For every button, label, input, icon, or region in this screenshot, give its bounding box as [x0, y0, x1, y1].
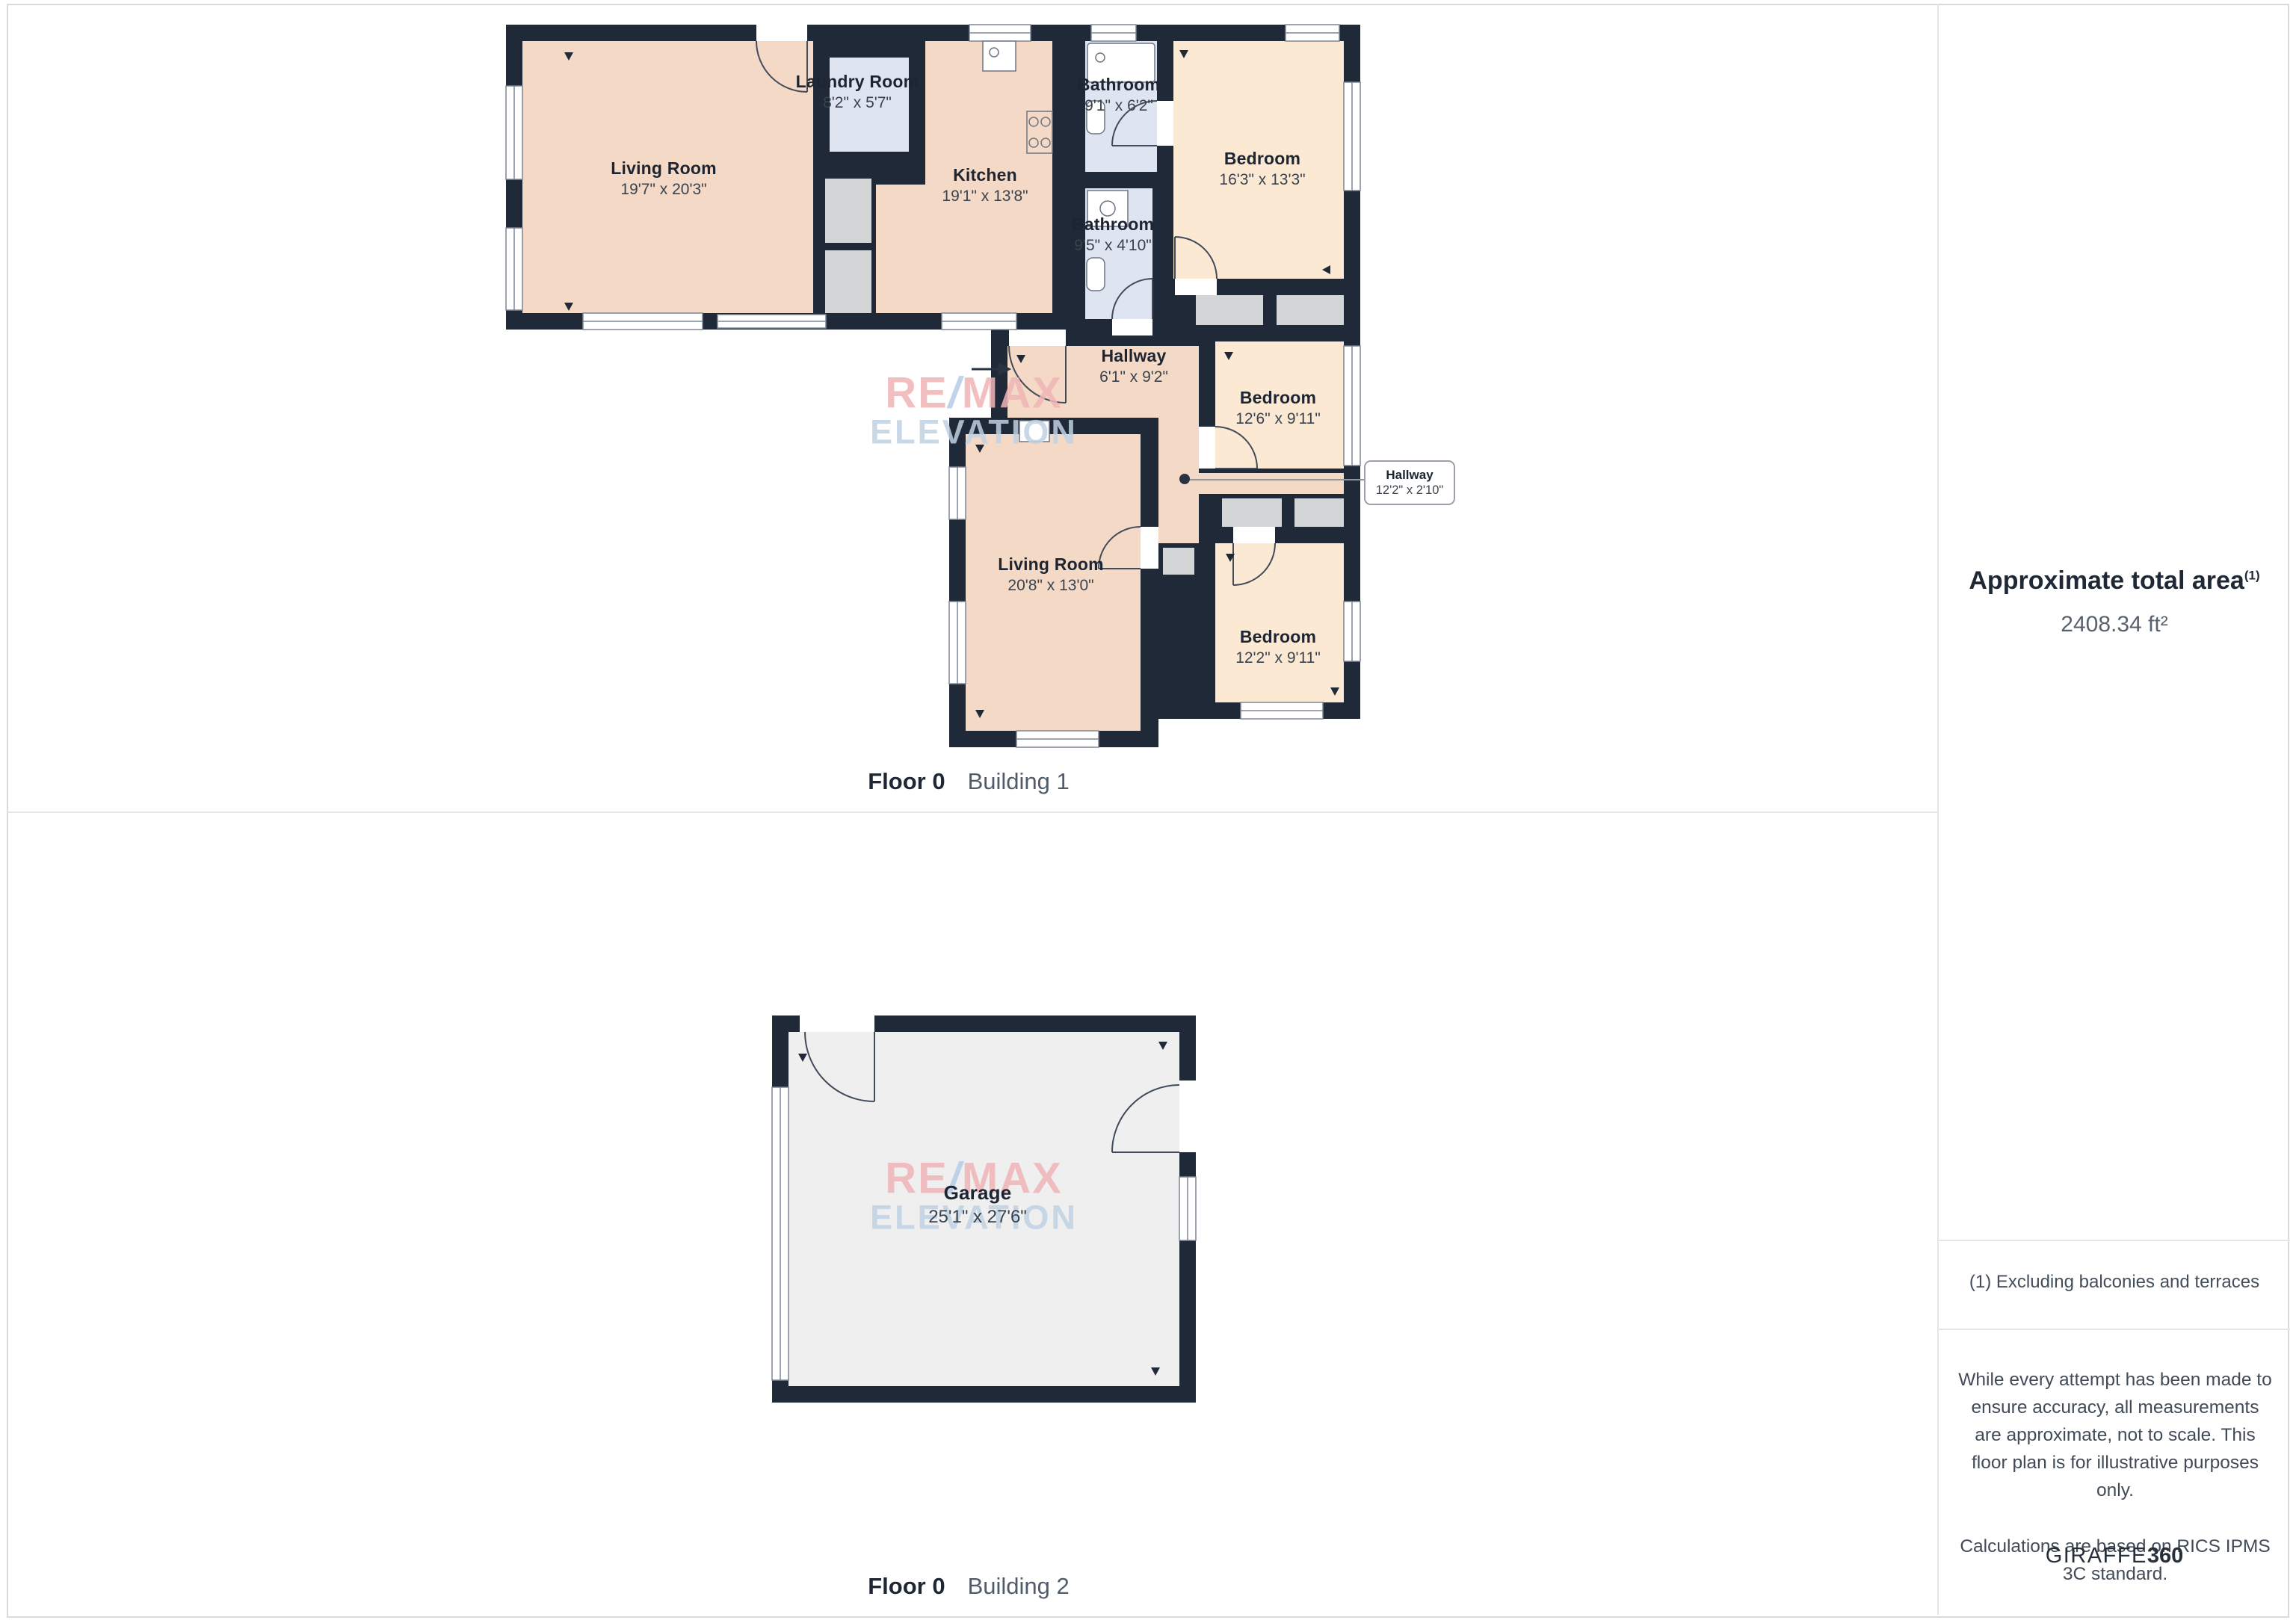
- total-area-value: 2408.34 ft²: [1939, 612, 2290, 637]
- room-label-bathroom-2: Bathroom 9'5" x 4'10": [1072, 214, 1154, 255]
- hallway-dimension-callout: Hallway 12'2" x 2'10": [1364, 460, 1455, 505]
- giraffe360-logo: GIRAFFE360: [1939, 1544, 2290, 1568]
- room-label-kitchen: Kitchen 19'1" x 13'8": [942, 165, 1028, 205]
- room-label-bedroom-2: Bedroom 12'6" x 9'11": [1235, 388, 1321, 428]
- room-label-bedroom-3: Bedroom 12'2" x 9'11": [1235, 627, 1321, 667]
- floor1-caption: Floor 0 Building 1: [0, 768, 1937, 795]
- sidebar-divider: [1937, 4, 1939, 1615]
- exclusion-note: (1) Excluding balconies and terraces: [1939, 1272, 2290, 1293]
- callout-leader-dot: [1179, 474, 1190, 484]
- floorplan-page: RE/MAX ELEVATION: [0, 0, 2296, 1623]
- room-label-hallway: Hallway 6'1" x 9'2": [1099, 346, 1168, 386]
- total-area-title: Approximate total area(1): [1939, 566, 2290, 596]
- floors-divider: [7, 811, 1937, 813]
- room-label-laundry-room: Laundry Room 8'2" x 5'7": [796, 72, 919, 112]
- total-area-block: Approximate total area(1) 2408.34 ft²: [1939, 566, 2290, 637]
- floor2-caption: Floor 0 Building 2: [0, 1573, 1937, 1600]
- sidebar-section-divider-2: [1939, 1329, 2290, 1330]
- room-label-bedroom-1: Bedroom 16'3" x 13'3": [1219, 149, 1305, 189]
- sidebar-section-divider-1: [1939, 1240, 2290, 1241]
- callout-leader-line: [1188, 479, 1364, 480]
- room-label-bathroom-1: Bathroom 9'1" x 6'2": [1078, 75, 1160, 115]
- disclaimer-accuracy: While every attempt has been made to ens…: [1957, 1366, 2274, 1504]
- room-label-living-room-2: Living Room 20'8" x 13'0": [998, 554, 1103, 595]
- room-fills: [522, 25, 1344, 731]
- room-label-living-room-1: Living Room 19'7" x 20'3": [611, 158, 716, 199]
- room-label-garage: Garage 25'1" x 27'6": [928, 1181, 1027, 1228]
